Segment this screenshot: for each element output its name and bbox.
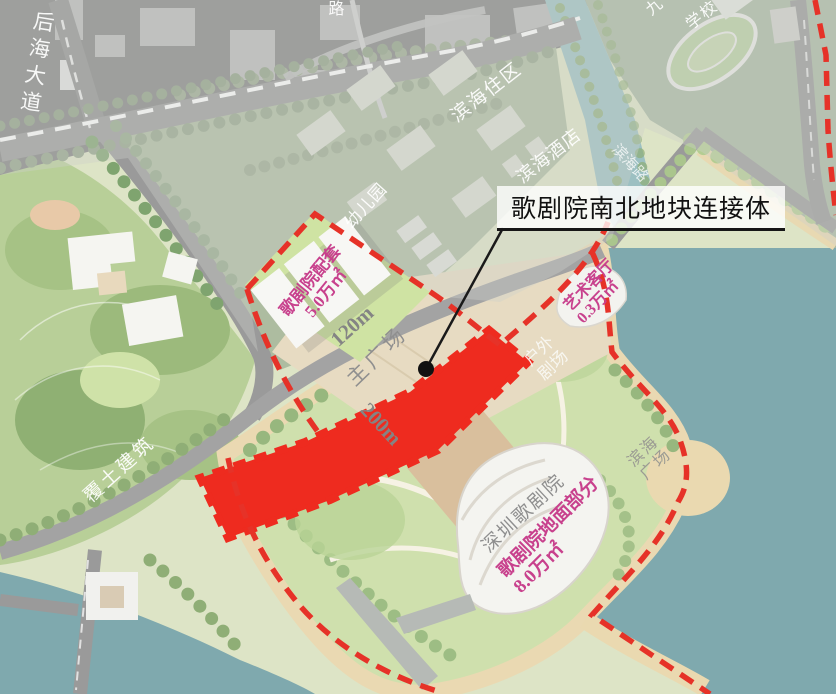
site-plan-map: 后海大道 路 滨海住区 幼儿园 滨海酒店 九 学校 滨海路 歌剧院配套 5.0万… (0, 0, 836, 694)
callout-connector-label: 歌剧院南北地块连接体 (497, 186, 785, 231)
map-artwork (0, 0, 836, 694)
label-top-road: 路 (324, 0, 342, 16)
